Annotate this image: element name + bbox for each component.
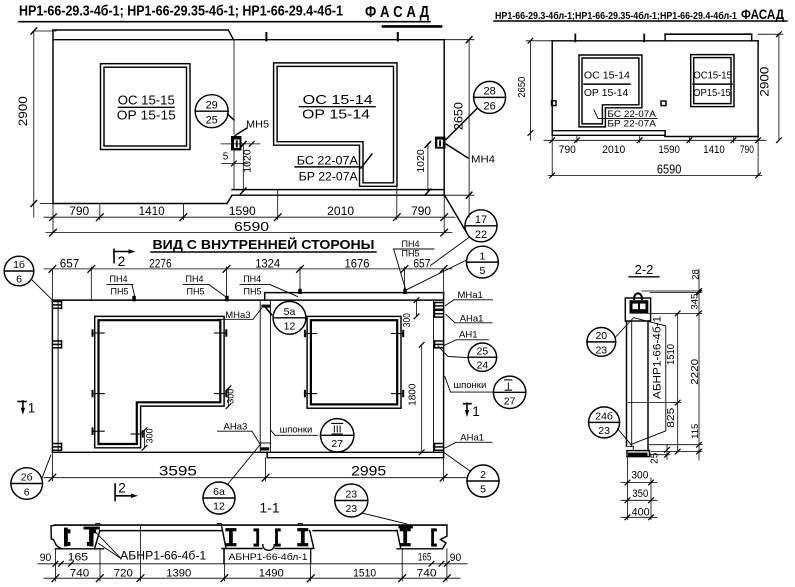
svg-text:23: 23 [595, 345, 607, 357]
svg-text:ПН5: ПН5 [187, 286, 205, 296]
svg-text:345: 345 [690, 294, 701, 310]
svg-text:БР 22-07А: БР 22-07А [607, 119, 656, 130]
svg-text:25: 25 [649, 452, 660, 464]
svg-text:6590: 6590 [234, 219, 269, 234]
svg-text:23: 23 [345, 489, 357, 501]
svg-text:ПН5: ПН5 [244, 286, 262, 296]
svg-text:шпонки: шпонки [280, 425, 313, 436]
svg-text:1: 1 [28, 401, 36, 416]
svg-text:1390: 1390 [166, 568, 191, 580]
svg-text:1590: 1590 [229, 204, 256, 218]
svg-text:24б: 24б [595, 411, 613, 423]
svg-text:ПН4: ПН4 [186, 274, 204, 284]
svg-text:1510: 1510 [353, 568, 376, 580]
svg-text:790: 790 [411, 204, 431, 218]
svg-text:Ф А С А Д: Ф А С А Д [365, 4, 429, 21]
svg-text:1: 1 [479, 250, 485, 262]
svg-text:1490: 1490 [259, 568, 284, 580]
svg-text:720: 720 [114, 568, 133, 580]
svg-text:740: 740 [70, 568, 90, 580]
svg-text:790: 790 [740, 144, 754, 156]
svg-text:22: 22 [475, 229, 487, 241]
svg-text:ОС 15-14: ОС 15-14 [303, 92, 373, 107]
svg-text:29: 29 [206, 99, 218, 111]
svg-text:НР1-66-29.3-4бл-1;НР1-66-29.35: НР1-66-29.3-4бл-1;НР1-66-29.35-4бл-1;НР1… [495, 10, 737, 22]
svg-text:МН4: МН4 [471, 154, 495, 166]
svg-text:2995: 2995 [351, 463, 386, 478]
svg-text:ОР 15-15: ОР 15-15 [117, 108, 176, 123]
svg-text:ОС15-15: ОС15-15 [693, 69, 732, 81]
svg-text:1800: 1800 [407, 383, 418, 406]
svg-text:5: 5 [480, 484, 486, 496]
svg-text:400: 400 [632, 506, 650, 518]
svg-text:6а: 6а [213, 486, 225, 498]
svg-text:1410: 1410 [703, 144, 725, 156]
svg-text:5а: 5а [284, 306, 296, 318]
svg-text:27: 27 [331, 438, 343, 450]
svg-text:1-1: 1-1 [259, 500, 279, 516]
svg-text:5: 5 [223, 152, 229, 163]
svg-text:6: 6 [16, 274, 22, 286]
svg-text:2900: 2900 [760, 67, 772, 97]
svg-text:790: 790 [69, 204, 89, 218]
svg-text:2б: 2б [21, 472, 33, 484]
svg-text:300: 300 [145, 428, 155, 443]
svg-text:25: 25 [477, 345, 489, 357]
svg-text:17: 17 [475, 214, 487, 226]
svg-text:АН1: АН1 [459, 330, 477, 341]
svg-text:23: 23 [345, 503, 357, 515]
svg-text:БР 22-07А: БР 22-07А [299, 170, 358, 184]
svg-text:2: 2 [118, 254, 126, 269]
svg-text:115: 115 [690, 424, 701, 439]
svg-text:740: 740 [417, 568, 437, 580]
svg-text:90: 90 [40, 552, 52, 564]
svg-text:90: 90 [450, 552, 462, 564]
svg-text:ОР 15-14: ОР 15-14 [302, 107, 370, 122]
svg-text:350: 350 [632, 488, 648, 500]
svg-text:2010: 2010 [602, 144, 625, 156]
svg-text:1020: 1020 [242, 149, 254, 173]
svg-text:2650: 2650 [516, 77, 528, 98]
svg-text:АБНР1-66-4б-1: АБНР1-66-4б-1 [120, 551, 206, 563]
svg-text:1020: 1020 [415, 149, 427, 173]
svg-text:1676: 1676 [345, 258, 370, 270]
svg-text:БС 22-07А: БС 22-07А [297, 154, 358, 168]
svg-text:1324: 1324 [255, 258, 281, 270]
svg-text:ФАСАД: ФАСАД [741, 6, 784, 22]
svg-text:5: 5 [479, 265, 485, 277]
svg-text:27: 27 [504, 396, 516, 408]
svg-text:2-2: 2-2 [635, 262, 654, 277]
svg-text:300: 300 [402, 313, 413, 327]
svg-text:ПН5: ПН5 [111, 286, 129, 296]
svg-text:2220: 2220 [689, 359, 701, 385]
svg-text:2: 2 [480, 469, 486, 481]
svg-text:1510: 1510 [666, 344, 677, 365]
svg-text:26: 26 [483, 101, 495, 113]
svg-text:3595: 3595 [159, 463, 197, 478]
svg-text:ПН5: ПН5 [402, 248, 420, 258]
svg-text:АБНР1-66-4бл-1: АБНР1-66-4бл-1 [229, 552, 308, 562]
svg-text:12: 12 [284, 321, 296, 333]
svg-text:1б: 1б [13, 259, 25, 271]
svg-text:12: 12 [213, 501, 225, 513]
svg-text:24: 24 [477, 360, 489, 372]
svg-text:300: 300 [631, 470, 648, 482]
svg-text:790: 790 [559, 144, 576, 156]
svg-text:657: 657 [60, 258, 80, 270]
svg-text:1590: 1590 [658, 144, 680, 156]
svg-text:6590: 6590 [657, 163, 682, 177]
svg-text:ВИД С ВНУТРЕННЕЙ СТОРОНЫ: ВИД С ВНУТРЕННЕЙ СТОРОНЫ [153, 237, 375, 252]
svg-text:6: 6 [24, 486, 30, 498]
svg-text:165: 165 [418, 552, 432, 564]
svg-text:НР1-66-29.3-4б-1; НР1-66-29.35: НР1-66-29.3-4б-1; НР1-66-29.35-4б-1; НР1… [19, 3, 343, 19]
svg-text:25: 25 [206, 114, 218, 126]
svg-text:шпонки: шпонки [454, 380, 487, 391]
svg-text:ОС 15-15: ОС 15-15 [118, 92, 175, 107]
svg-text:2: 2 [118, 480, 126, 495]
svg-text:АБНР1-66-4б-1: АБНР1-66-4б-1 [651, 316, 663, 399]
svg-text:2010: 2010 [327, 204, 354, 218]
svg-text:20: 20 [595, 330, 607, 342]
svg-text:ОС 15-14: ОС 15-14 [584, 69, 630, 81]
svg-text:МН5: МН5 [246, 119, 269, 131]
svg-text:ОР15-15: ОР15-15 [693, 87, 731, 99]
svg-text:657: 657 [413, 258, 430, 270]
svg-text:ПН4: ПН4 [110, 274, 128, 284]
svg-text:300: 300 [226, 389, 236, 404]
svg-text:ПН4: ПН4 [243, 274, 261, 284]
svg-text:ОР 15-14: ОР 15-14 [584, 87, 629, 99]
svg-text:2900: 2900 [16, 96, 30, 126]
svg-text:825: 825 [665, 408, 677, 428]
svg-text:2650: 2650 [451, 102, 465, 130]
svg-text:28: 28 [483, 86, 495, 98]
svg-text:165: 165 [68, 552, 89, 564]
svg-text:2276: 2276 [149, 258, 172, 270]
svg-text:1410: 1410 [139, 204, 165, 218]
svg-text:23: 23 [598, 425, 610, 437]
svg-text:28: 28 [690, 269, 701, 280]
svg-text:1: 1 [472, 404, 480, 419]
